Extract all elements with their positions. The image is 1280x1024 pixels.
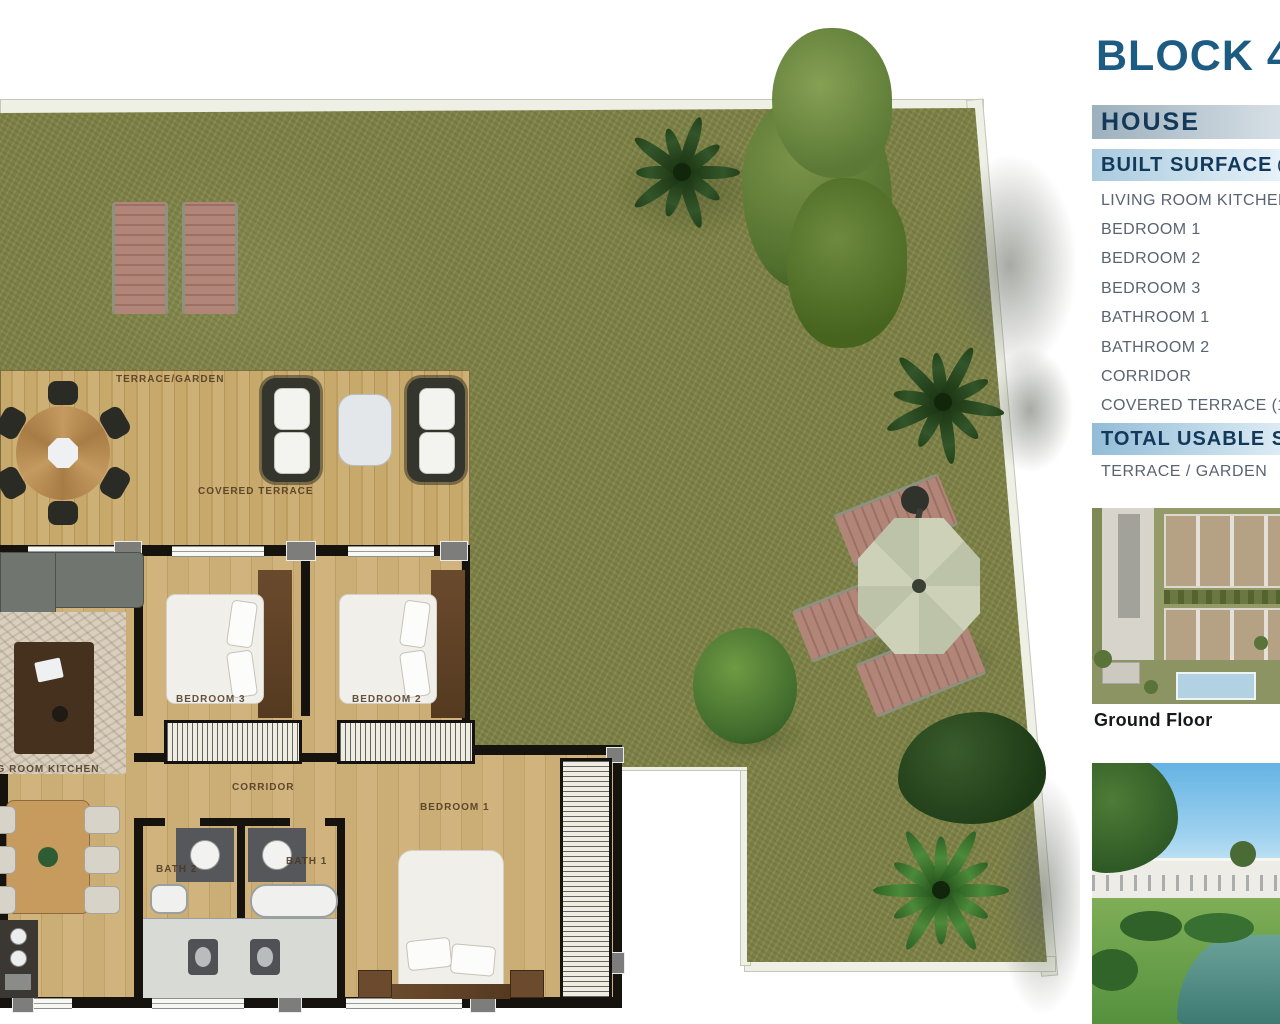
sun-lounger <box>112 202 168 314</box>
bed-headboard <box>392 984 510 999</box>
chair <box>84 806 120 834</box>
wardrobe <box>560 758 612 1000</box>
dining-table <box>6 800 90 914</box>
photo-bush <box>1184 913 1254 943</box>
siteplan-road-median <box>1118 514 1140 618</box>
chair <box>0 806 16 834</box>
label-bedroom3: BEDROOM 3 <box>176 694 246 705</box>
window <box>346 998 462 1009</box>
chair <box>48 381 78 405</box>
room-list-item: BATHROOM 1 <box>1101 304 1280 333</box>
palm-tree <box>622 108 742 236</box>
chair <box>84 886 120 914</box>
siteplan-hedge <box>1164 590 1280 604</box>
project-photo <box>1092 763 1280 1024</box>
room-list-item: BEDROOM 2 <box>1101 245 1280 274</box>
wall-segment <box>0 997 622 1008</box>
wall-segment <box>143 818 165 826</box>
chair <box>0 886 16 914</box>
shower-area <box>143 918 337 998</box>
wall-segment <box>301 545 310 716</box>
kitchen-counter <box>0 920 38 998</box>
siteplan-tree <box>1144 680 1158 694</box>
outdoor-armchair <box>262 378 320 482</box>
wardrobe <box>164 720 302 764</box>
house-label: HOUSE <box>1092 108 1200 137</box>
nightstand <box>358 970 392 998</box>
room-list-item: BEDROOM 1 <box>1101 215 1280 244</box>
nightstand <box>510 970 544 998</box>
siteplan-tree <box>1254 636 1268 650</box>
room-list-item: CORRIDOR <box>1101 362 1280 391</box>
window <box>152 998 244 1009</box>
ground-floor-label: Ground Floor <box>1094 710 1213 731</box>
room-list-item: COVERED TERRACE (10 <box>1101 392 1280 421</box>
chair <box>0 846 16 874</box>
siteplan-tree <box>1094 650 1112 668</box>
toilet <box>150 884 188 914</box>
label-terrace-garden: TERRACE/GARDEN <box>116 374 224 385</box>
outdoor-coffee-table <box>338 394 392 466</box>
total-usable-bar: TOTAL USABLE SUR <box>1092 423 1280 455</box>
wall-pillar <box>286 541 316 561</box>
terrace-garden-label: TERRACE / GARDEN <box>1101 463 1267 481</box>
palm-tree <box>878 322 1008 482</box>
label-corridor: CORRIDOR <box>232 782 294 793</box>
wall-segment <box>200 818 290 826</box>
house-header-bar: HOUSE <box>1092 105 1280 139</box>
photo-palm <box>1230 841 1256 867</box>
built-surface-note: (Terra <box>1273 158 1280 172</box>
floor-plan: TERRACE/GARDEN COVERED TERRACE BEDROOM 3… <box>0 0 1080 1024</box>
bathtub <box>250 884 338 918</box>
site-plan-thumbnail <box>1092 508 1280 704</box>
label-bath1: BATH 1 <box>286 856 327 867</box>
bed <box>339 594 437 704</box>
photo-bush <box>1120 911 1182 941</box>
label-bedroom2: BEDROOM 2 <box>352 694 422 705</box>
siteplan-building-row <box>1164 514 1280 588</box>
bed <box>166 594 264 704</box>
wardrobe <box>337 720 475 764</box>
brochure-page: TERRACE/GARDEN COVERED TERRACE BEDROOM 3… <box>0 0 1280 1024</box>
room-list: LIVING ROOM KITCHEN BEDROOM 1 BEDROOM 2 … <box>1101 186 1280 421</box>
photo-tree <box>1092 763 1178 873</box>
label-bath2: BATH 2 <box>156 864 197 875</box>
outdoor-round-table <box>16 406 110 500</box>
large-tree <box>742 28 912 350</box>
wall-segment <box>462 745 622 755</box>
siteplan-pool <box>1176 672 1256 700</box>
room-list-item: BEDROOM 3 <box>1101 274 1280 303</box>
label-bedroom1: BEDROOM 1 <box>420 802 490 813</box>
window <box>348 546 434 557</box>
round-bush <box>693 628 797 744</box>
chair <box>84 846 120 874</box>
room-list-item: LIVING ROOM KITCHEN <box>1101 186 1280 215</box>
bed <box>398 850 504 992</box>
room-list-item: BATHROOM 2 <box>1101 333 1280 362</box>
parasol-pole <box>901 486 929 514</box>
parasol <box>858 518 980 654</box>
window <box>172 546 264 557</box>
chair <box>48 501 78 525</box>
pine-tree <box>866 806 1016 974</box>
wall-segment <box>134 818 143 1008</box>
built-surface-label: BUILT SURFACE <box>1092 154 1273 177</box>
coffee-table <box>14 642 94 754</box>
wall-segment <box>337 818 345 1008</box>
built-surface-bar: BUILT SURFACE (Terra <box>1092 149 1280 181</box>
sun-lounger <box>182 202 238 314</box>
bathroom-vanity <box>248 828 306 882</box>
block-title: BLOCK 4 <box>1096 32 1280 81</box>
outdoor-armchair <box>407 378 465 482</box>
label-covered-terrace: COVERED TERRACE <box>198 486 314 497</box>
total-usable-label: TOTAL USABLE SUR <box>1092 428 1280 451</box>
label-living-room-kitchen: LIVING ROOM KITCHEN <box>0 764 99 775</box>
wall-pillar <box>440 541 468 561</box>
